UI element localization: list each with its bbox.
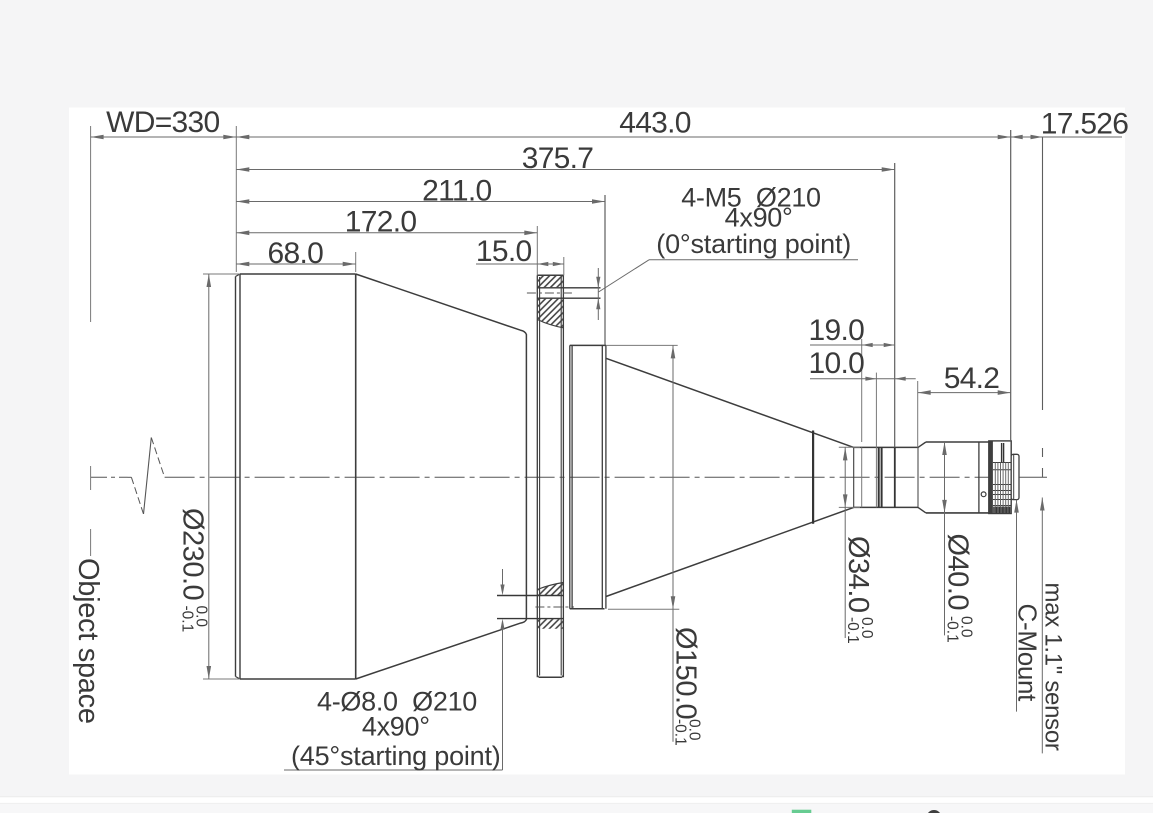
svg-text:17.526: 17.526 (1041, 107, 1129, 140)
svg-text:-0.1: -0.1 (179, 606, 196, 633)
svg-text:10.0: 10.0 (809, 347, 865, 380)
svg-text:4x90°: 4x90° (725, 202, 793, 232)
svg-text:19.0: 19.0 (809, 314, 865, 347)
svg-text:C-Mount: C-Mount (1013, 604, 1043, 703)
svg-text:-0.1: -0.1 (944, 616, 961, 643)
svg-text:Ø150.0: Ø150.0 (670, 627, 702, 719)
svg-text:54.2: 54.2 (944, 362, 1000, 395)
svg-text:172.0: 172.0 (345, 205, 417, 238)
svg-text:max 1.1" sensor: max 1.1" sensor (1040, 583, 1067, 751)
svg-text:Object space: Object space (72, 558, 104, 724)
svg-text:Ø34.0: Ø34.0 (842, 536, 874, 613)
svg-text:(0°starting point): (0°starting point) (656, 229, 851, 259)
svg-text:Ø230.0: Ø230.0 (177, 508, 209, 600)
svg-text:Ø40.0: Ø40.0 (942, 534, 974, 611)
svg-text:4x90°: 4x90° (362, 712, 430, 742)
svg-text:-0.1: -0.1 (672, 719, 689, 746)
svg-text:15.0: 15.0 (476, 235, 532, 268)
svg-text:-0.1: -0.1 (844, 617, 861, 644)
svg-text:(45°starting point): (45°starting point) (291, 741, 501, 771)
svg-text:WD=330: WD=330 (106, 106, 219, 139)
svg-text:68.0: 68.0 (268, 237, 324, 270)
svg-text:443.0: 443.0 (619, 107, 691, 140)
svg-text:375.7: 375.7 (522, 142, 594, 175)
svg-text:211.0: 211.0 (422, 174, 491, 207)
